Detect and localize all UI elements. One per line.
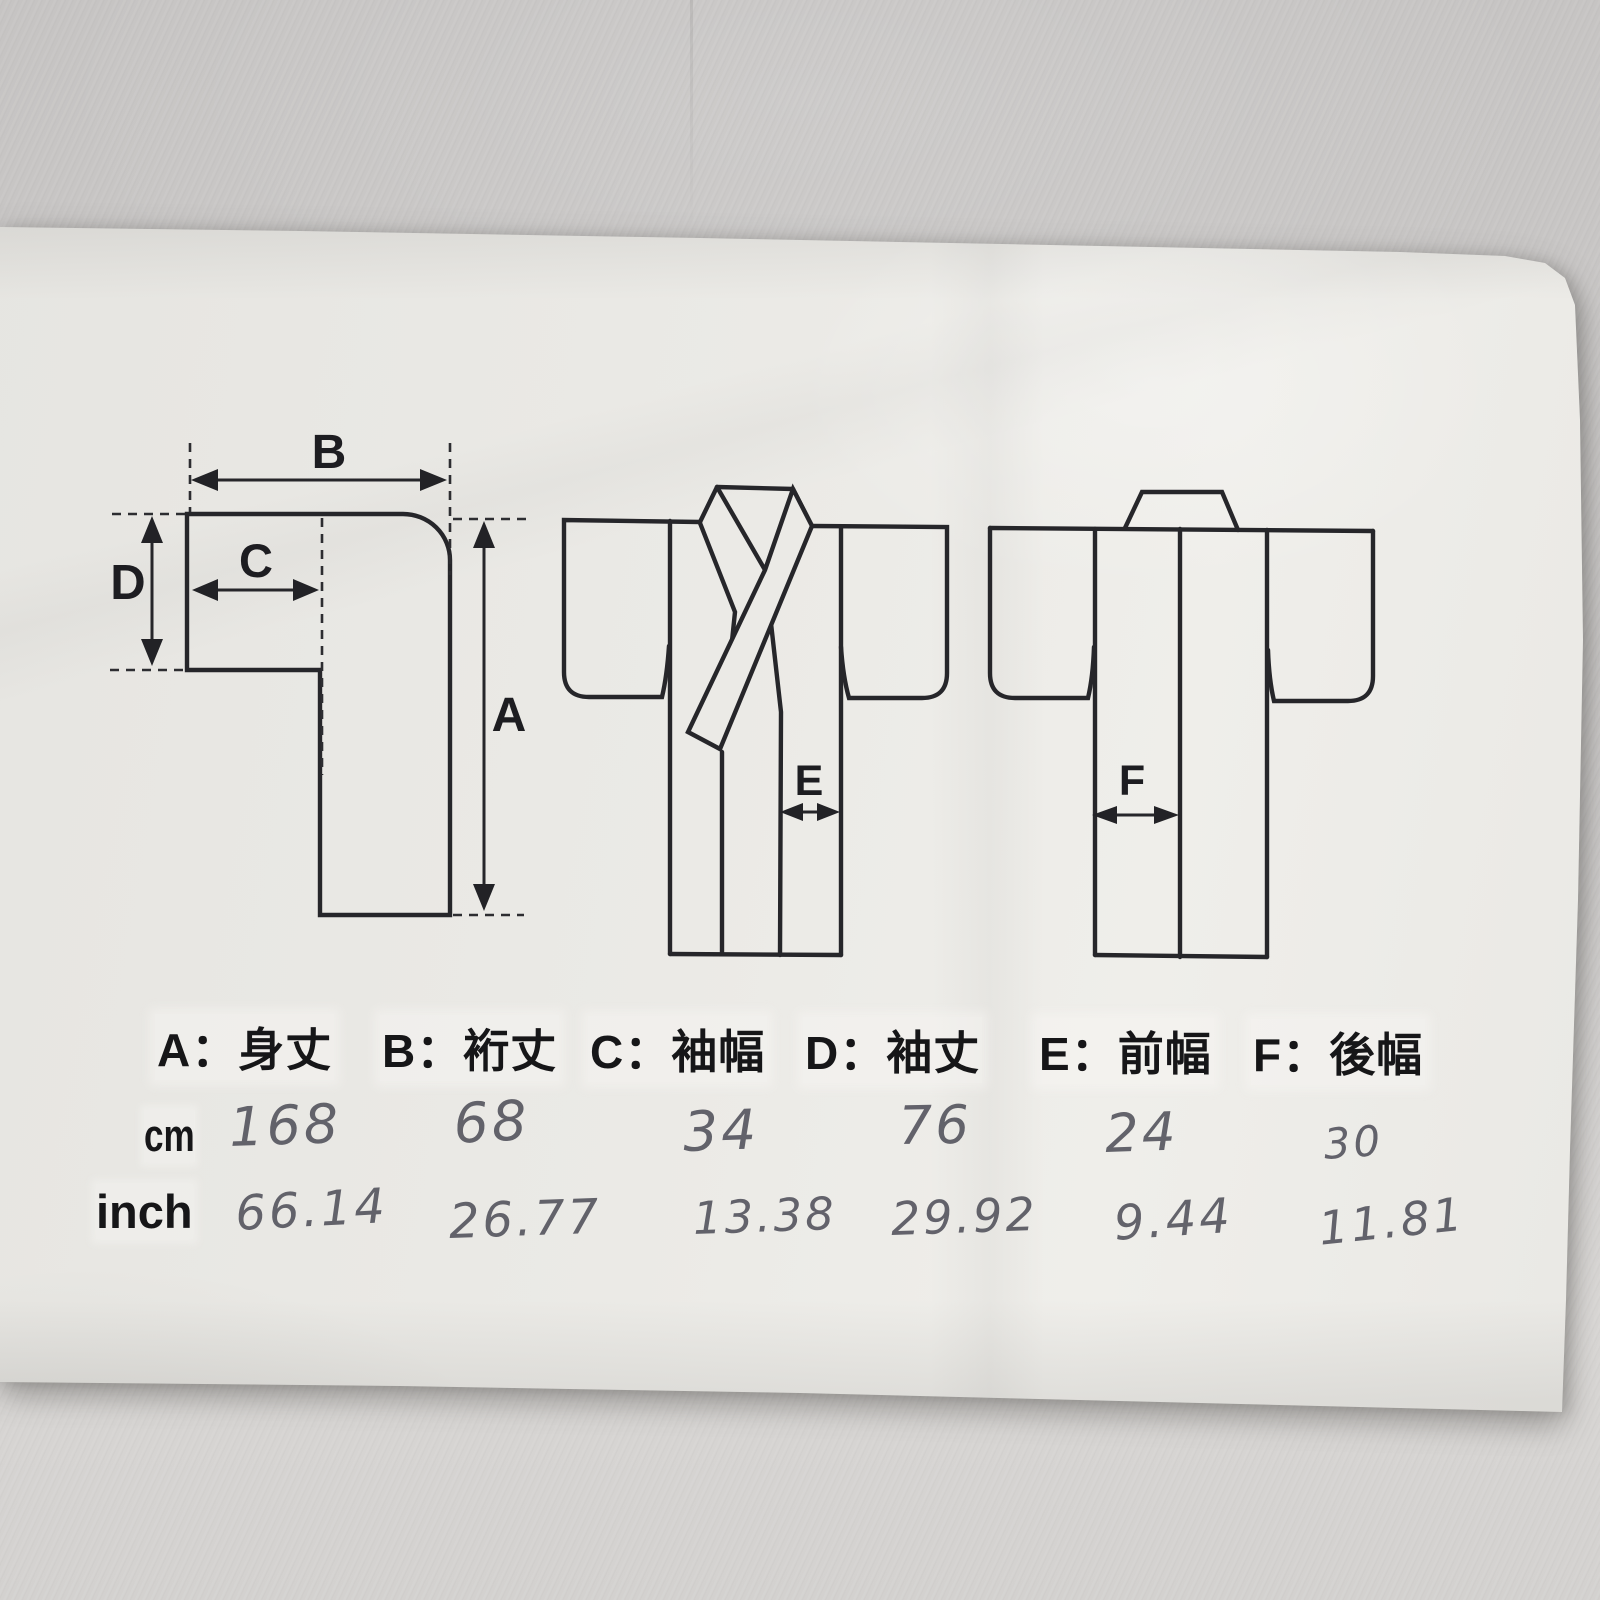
- collar-over-band: [688, 489, 812, 749]
- inch-row-label: inch: [96, 1184, 193, 1239]
- back-left-sleeve: [990, 528, 1094, 698]
- dimension-arrow-f: [1092, 806, 1179, 824]
- cm-value-e: 24: [1104, 1101, 1180, 1165]
- back-view-diagram: F: [990, 492, 1373, 957]
- measurement-letter-f: F: [1119, 757, 1145, 805]
- kimono-measurement-diagram: B C D A: [0, 0, 1600, 1600]
- inch-value-e: 9.44: [1112, 1188, 1234, 1252]
- inch-value-b: 26.77: [448, 1189, 602, 1250]
- legend-item-b: B：裄丈: [380, 1015, 559, 1081]
- cm-row-label: cm: [144, 1110, 195, 1162]
- back-right-sleeve: [1268, 531, 1373, 701]
- cm-value-d: 76: [898, 1095, 973, 1157]
- measurement-letter-d: D: [110, 556, 145, 610]
- legend-item-a: A：身丈: [155, 1014, 334, 1080]
- inch-value-a: 66.14: [234, 1178, 389, 1242]
- cm-value-b: 68: [452, 1088, 531, 1156]
- flat-panel-outline: [187, 514, 450, 915]
- cm-value-f: 30: [1322, 1116, 1385, 1169]
- legend-item-f: F：後幅: [1251, 1019, 1425, 1085]
- measurement-letter-b: B: [312, 426, 347, 479]
- measurement-letter-c: C: [239, 534, 273, 587]
- cm-value-c: 34: [682, 1097, 760, 1164]
- front-view-diagram: E: [564, 487, 947, 955]
- photo-of-measurement-sheet: B C D A: [0, 0, 1600, 1600]
- measurement-letter-a: A: [492, 689, 527, 742]
- dimension-arrow-e: [780, 803, 840, 821]
- back-collar: [1125, 492, 1238, 530]
- legend-item-e: E：前幅: [1037, 1018, 1214, 1084]
- inch-value-d: 29.92: [890, 1187, 1038, 1246]
- measurement-letter-e: E: [795, 757, 824, 805]
- front-hem: [670, 954, 841, 955]
- collar: [688, 487, 812, 749]
- back-hem: [1095, 955, 1267, 957]
- flat-panel-diagram: B C D A: [110, 426, 528, 915]
- front-left-sleeve: [564, 520, 700, 697]
- inch-value-c: 13.38: [692, 1187, 838, 1245]
- front-right-sleeve: [812, 526, 947, 698]
- legend-item-d: D：袖丈: [803, 1017, 982, 1083]
- legend-item-c: C：袖幅: [588, 1016, 767, 1082]
- cm-value-a: 168: [228, 1092, 342, 1159]
